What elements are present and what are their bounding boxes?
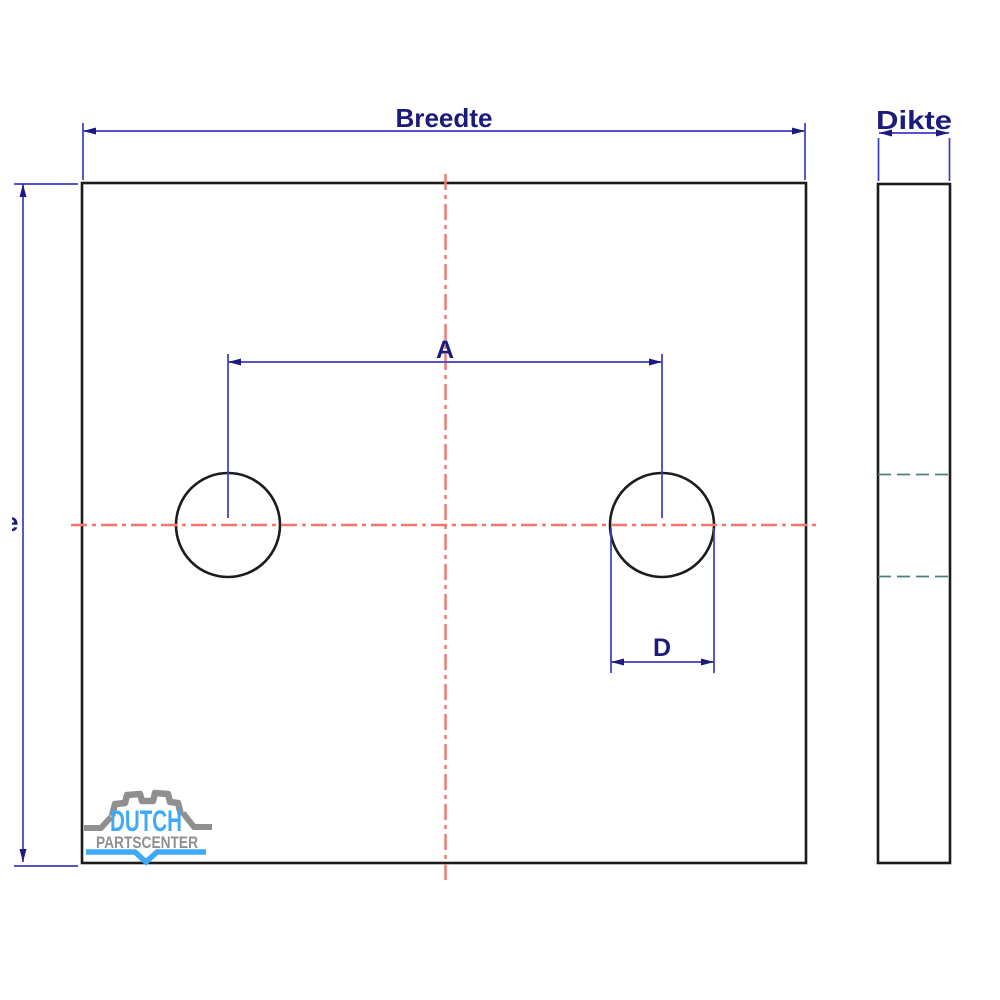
arrow-left-icon	[611, 659, 624, 666]
technical-drawing-page: Breedte Dikte e	[0, 0, 1000, 1000]
drawing-canvas: Breedte Dikte e	[0, 0, 1000, 1000]
centerlines	[71, 174, 818, 881]
arrow-left-icon	[83, 128, 96, 135]
logo-swoosh-right-icon	[183, 813, 212, 827]
side-view-outline	[878, 184, 950, 863]
front-view-outline	[82, 183, 806, 863]
thickness-dimension: Dikte	[876, 105, 952, 181]
arrow-right-icon	[649, 359, 662, 366]
hole-diameter-dimension: D	[611, 528, 714, 673]
part-views	[82, 183, 950, 863]
width-dimension: Breedte	[83, 103, 805, 180]
width-dimension-label: Breedte	[396, 103, 493, 133]
arrow-down-icon	[20, 849, 27, 862]
hole-spacing-label: A	[436, 336, 454, 364]
height-dimension: e	[4, 184, 78, 866]
height-label-clip: e	[4, 507, 18, 537]
hole-diameter-label: D	[653, 634, 671, 662]
arrow-left-icon	[228, 359, 241, 366]
hidden-lines	[878, 475, 950, 577]
arrow-up-icon	[20, 184, 27, 197]
logo-swoosh-left-icon	[84, 817, 111, 828]
thickness-dimension-label: Dikte	[876, 105, 952, 135]
logo-underline	[86, 852, 206, 862]
height-dimension-label-fragment: e	[4, 507, 18, 537]
arrow-right-icon	[701, 659, 714, 666]
logo: DUTCH PARTSCENTER	[84, 793, 212, 862]
arrow-right-icon	[792, 128, 805, 135]
logo-subtitle: PARTSCENTER	[96, 833, 198, 852]
